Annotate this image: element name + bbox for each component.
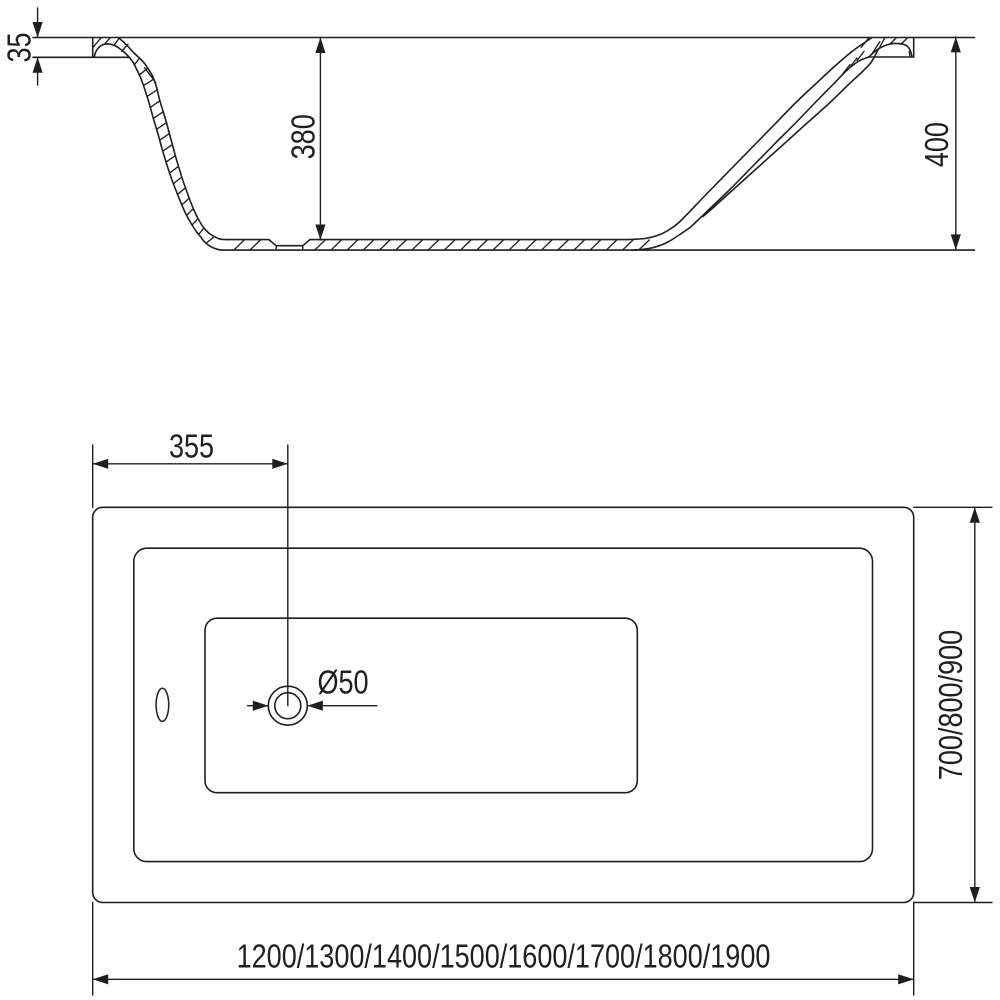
svg-text:400: 400 [920,122,956,167]
svg-text:700/800/900: 700/800/900 [934,630,970,780]
svg-text:Ø50: Ø50 [317,665,368,701]
svg-text:35: 35 [2,32,38,62]
svg-text:1200/1300/1400/1500/1600/1700/: 1200/1300/1400/1500/1600/1700/1800/1900 [237,939,771,975]
svg-text:355: 355 [169,429,214,465]
svg-text:380: 380 [286,114,322,159]
